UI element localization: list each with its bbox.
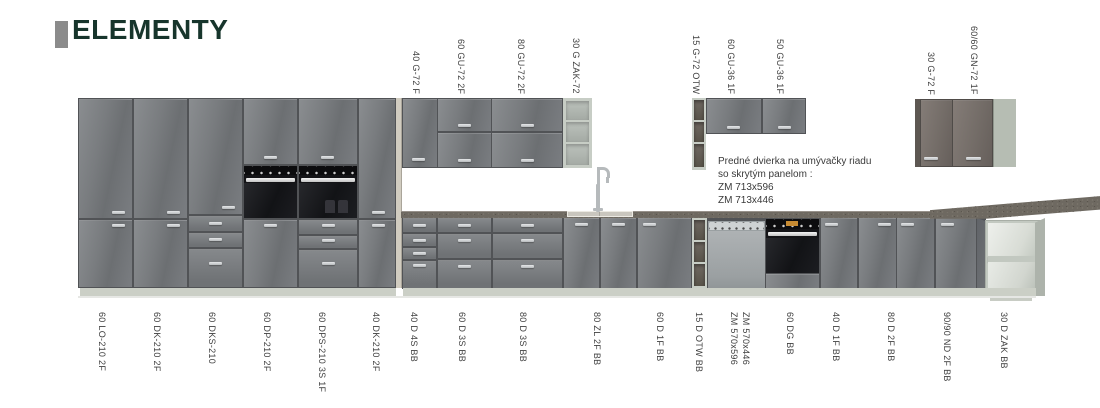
shelf-opening — [566, 144, 589, 165]
shelf-opening — [694, 220, 705, 240]
oven-glass — [766, 238, 819, 273]
cabinet-code-label: 60 DP-210 2F — [262, 312, 272, 372]
cabinet-code-label: 60 DK-210 2F — [152, 312, 162, 372]
handle — [264, 156, 277, 159]
door-front — [936, 218, 976, 288]
handle — [643, 223, 656, 226]
door-front — [79, 99, 132, 218]
handle — [112, 224, 125, 227]
drawer-front — [493, 234, 562, 258]
oven-handle — [768, 232, 817, 236]
cabinet-code-label: 80 GU-72 2F — [516, 39, 526, 94]
faucet-tip — [606, 177, 609, 183]
door-front — [766, 274, 819, 288]
handle — [521, 265, 534, 268]
oven-glass — [244, 183, 297, 218]
drawer-front — [189, 249, 242, 287]
oven-control-panel — [299, 166, 357, 175]
note-line: ZM 713x446 — [718, 194, 871, 207]
handle — [575, 223, 588, 226]
handle — [372, 211, 385, 214]
shelf-opening — [566, 122, 589, 142]
door-front — [601, 218, 636, 288]
handle — [322, 224, 335, 227]
handle — [924, 157, 938, 160]
cabinet-code-label: ZM 570x446 — [741, 312, 751, 365]
handle — [413, 239, 426, 242]
cabinet-code-label: 30 D ZAK BB — [999, 312, 1009, 369]
door-front — [359, 99, 395, 218]
dishwasher-front — [708, 221, 765, 290]
door-front — [134, 220, 187, 287]
shelf-opening — [694, 264, 705, 286]
dishwasher-control-panel — [708, 221, 765, 231]
countertop-corner — [930, 194, 1100, 220]
oven-display — [786, 221, 798, 226]
faucet-base — [593, 208, 603, 211]
handle — [458, 124, 471, 127]
cabinet-code-label: 60 DKS-210 — [207, 312, 217, 364]
handle — [322, 239, 335, 242]
cabinet-code-label: 60 DPS-210 3S 1F — [317, 312, 327, 392]
cabinet-code-label: 60 D 1F BB — [655, 312, 665, 362]
cabinet-code-label: 60/60 GN-72 1F — [969, 26, 979, 95]
shelf-opening — [694, 144, 704, 167]
cabinet-code-label: 40 D 4S BB — [409, 312, 419, 362]
cabinet-code-label: 40 D 1F BB — [831, 312, 841, 362]
handle — [321, 156, 334, 159]
cabinet-code-label: 15 D OTW BB — [694, 312, 704, 372]
sink — [567, 211, 633, 217]
handle — [112, 211, 125, 214]
door-front — [564, 218, 599, 288]
oven-control-panel — [244, 166, 297, 175]
cabinet-code-label: 40 DK-210 2F — [371, 312, 381, 372]
door-front — [359, 220, 395, 287]
door-front — [859, 218, 896, 288]
cabinet-code-label: 60 DG BB — [785, 312, 795, 355]
handle — [413, 264, 426, 267]
oven-handle — [301, 178, 355, 182]
handle — [209, 238, 222, 241]
side-panel — [1035, 218, 1045, 296]
handle — [521, 224, 534, 227]
countertop — [401, 211, 987, 218]
shelf-opening — [694, 122, 704, 142]
drawer-front — [438, 234, 491, 258]
handle — [521, 124, 534, 127]
handle — [264, 224, 277, 227]
floor-shadow — [78, 296, 1036, 298]
door-front — [244, 220, 297, 287]
door-front — [244, 99, 297, 164]
door-front — [299, 99, 357, 164]
cabinet-code-label: 90/90 ND 2F BB — [942, 312, 952, 382]
note-line: Predné dvierka na umývačky riadu — [718, 155, 871, 168]
cabinet-code-label: 80 D 2F BB — [886, 312, 896, 362]
cabinet-code-label: 80 D 3S BB — [518, 312, 528, 362]
note-line: so skrytým panelom : — [718, 168, 871, 181]
cup-silhouette — [325, 200, 335, 213]
door-front — [821, 218, 857, 288]
handle — [458, 159, 471, 162]
shelf-opening — [988, 223, 1035, 256]
drawer-front — [299, 250, 357, 287]
door-front — [189, 99, 242, 214]
cabinet-code-label: 60 GU-36 1F — [726, 39, 736, 94]
door-front — [897, 218, 934, 288]
handle — [521, 239, 534, 242]
plinth — [80, 288, 396, 296]
handle — [209, 262, 222, 265]
handle — [412, 158, 425, 161]
cabinet-code-label: 30 G-72 F — [926, 52, 936, 95]
corner-side-panel — [993, 99, 1016, 167]
page-title: ELEMENTY — [72, 14, 228, 46]
handle — [413, 224, 426, 227]
handle — [727, 126, 740, 129]
cabinet-code-label: ZM 570x596 — [729, 312, 739, 365]
shelf-opening — [566, 101, 589, 120]
kitchen-elements-diagram: ELEMENTY 40 G-72 F 60 GU-72 2F 80 GU-72 … — [0, 0, 1100, 408]
handle — [901, 223, 914, 226]
handle — [878, 223, 891, 226]
handle — [966, 157, 981, 160]
door-front — [638, 218, 691, 288]
cabinet-code-label: 60 GU-72 2F — [456, 39, 466, 94]
cabinet-code-label: 60 D 3S BB — [457, 312, 467, 362]
logo-block-icon — [55, 21, 68, 48]
cabinet-code-label: 80 ZL 2F BB — [592, 312, 602, 366]
note-line: ZM 713x596 — [718, 181, 871, 194]
sink-divider — [599, 212, 600, 216]
handle — [458, 239, 471, 242]
shelf-opening — [988, 262, 1035, 289]
dishwasher-front-note: Predné dvierka na umývačky riadu so skry… — [718, 155, 871, 207]
oven-handle — [246, 178, 295, 182]
plinth — [403, 288, 1036, 296]
cup-silhouette — [338, 200, 348, 213]
cabinet-code-label: 15 G-72 OTW — [691, 35, 701, 94]
handle — [458, 265, 471, 268]
handle — [322, 262, 335, 265]
cabinet-code-label: 60 LO-210 2F — [97, 312, 107, 371]
handle — [778, 126, 791, 129]
drawer-front — [299, 236, 357, 248]
side-edge — [915, 99, 920, 167]
shelf-opening — [694, 242, 705, 262]
door-front — [79, 220, 132, 287]
handle — [458, 224, 471, 227]
handle — [413, 252, 426, 255]
handle — [167, 224, 180, 227]
handle — [612, 223, 625, 226]
handle — [222, 206, 235, 209]
handle — [167, 211, 180, 214]
handle — [825, 223, 838, 226]
handle — [372, 224, 385, 227]
shelf-opening — [694, 100, 704, 120]
cabinet-code-label: 50 GU-36 1F — [775, 39, 785, 94]
handle — [521, 159, 534, 162]
cabinet-code-label: 40 G-72 F — [411, 51, 421, 94]
door-front — [134, 99, 187, 218]
handle — [209, 222, 222, 225]
cabinet-code-label: 30 G ZAK-72 — [571, 38, 581, 94]
door-front — [403, 99, 437, 167]
drawer-front — [299, 220, 357, 234]
handle — [941, 223, 954, 226]
